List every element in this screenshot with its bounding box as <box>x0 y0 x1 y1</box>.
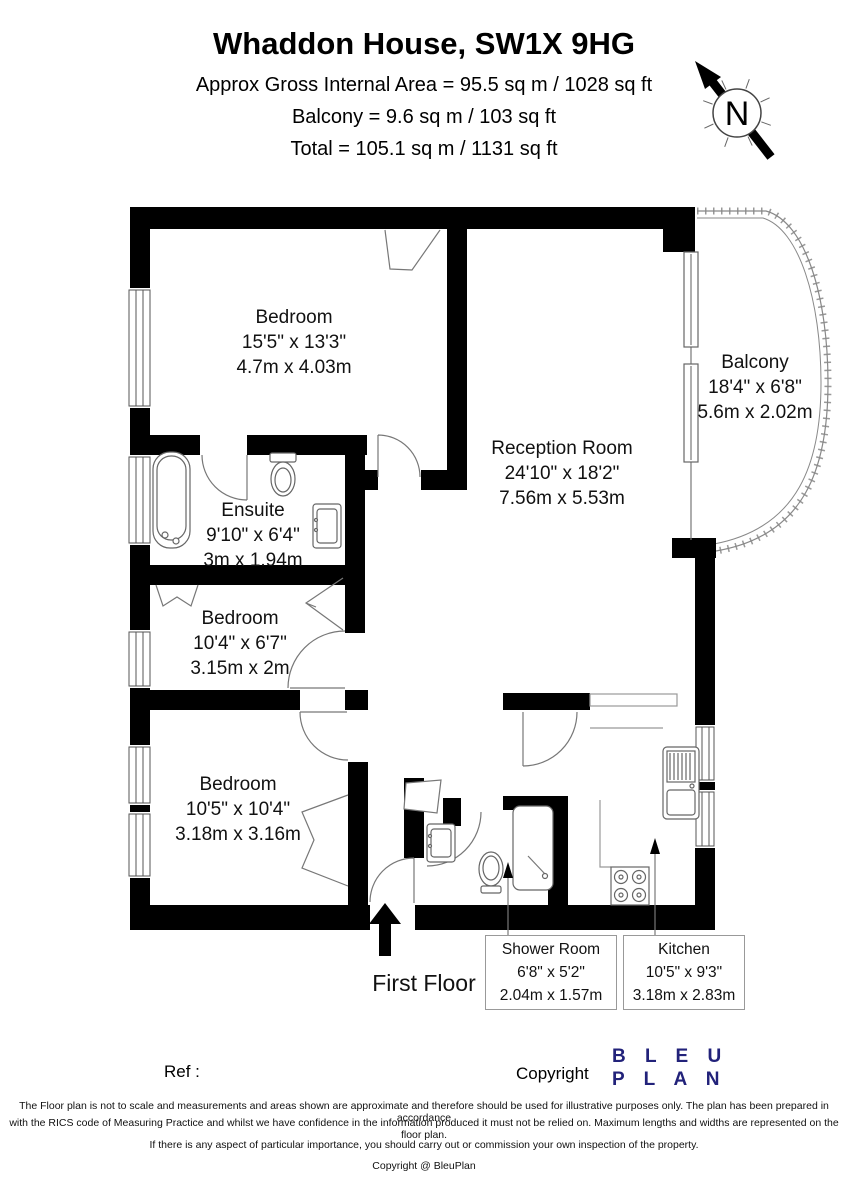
compass: N <box>695 61 771 157</box>
ensuite-basin-icon <box>313 504 341 548</box>
entrance-arrow-icon <box>369 903 401 956</box>
bleuplan-logo-line2: P L A N <box>612 1069 712 1091</box>
room-name: Bedroom <box>175 772 301 797</box>
room-label-bedroom-3: Bedroom 10'5" x 10'4" 3.18m x 3.16m <box>175 772 301 847</box>
ensuite-toilet-icon <box>270 453 296 496</box>
floor-label: First Floor <box>372 970 476 997</box>
disclaimer-line-4: Copyright @ BleuPlan <box>0 1160 848 1172</box>
shower-basin-icon <box>427 824 455 862</box>
disclaimer-line-2: with the RICS code of Measuring Practice… <box>0 1117 848 1141</box>
room-name: Bedroom <box>190 606 289 631</box>
room-label-ensuite: Ensuite 9'10" x 6'4" 3m x 1.94m <box>203 498 302 573</box>
bleuplan-logo-line1: B L E U <box>612 1046 712 1068</box>
room-name: Ensuite <box>203 498 302 523</box>
copyright-label: Copyright <box>516 1064 589 1084</box>
room-dims-metric: 3m x 1.94m <box>203 548 302 573</box>
room-label-bedroom-1: Bedroom 15'5" x 13'3" 4.7m x 4.03m <box>236 305 351 380</box>
room-name: Shower Room <box>486 938 616 961</box>
kitchen-sink-icon <box>663 747 699 819</box>
shower-tray-icon <box>513 806 553 890</box>
floorplan-page: Whaddon House, SW1X 9HG Approx Gross Int… <box>0 0 848 1200</box>
room-dims-imperial: 15'5" x 13'3" <box>236 330 351 355</box>
room-dims-imperial: 18'4" x 6'8" <box>697 375 812 400</box>
room-dims-metric: 5.6m x 2.02m <box>697 400 812 425</box>
room-name: Kitchen <box>624 938 744 961</box>
room-dims-metric: 3.18m x 3.16m <box>175 822 301 847</box>
room-dims-imperial: 10'5" x 10'4" <box>175 797 301 822</box>
room-name: Reception Room <box>491 436 633 461</box>
room-dims-imperial: 6'8" x 5'2" <box>486 961 616 984</box>
floor-plan-drawing: N <box>0 0 848 1200</box>
room-label-reception: Reception Room 24'10" x 18'2" 7.56m x 5.… <box>491 436 633 511</box>
room-dims-metric: 2.04m x 1.57m <box>486 984 616 1007</box>
balcony-glazing-icon <box>684 252 698 540</box>
ref-label: Ref : <box>164 1062 200 1082</box>
compass-n-label: N <box>725 95 750 133</box>
room-dims-metric: 7.56m x 5.53m <box>491 486 633 511</box>
room-dims-imperial: 10'4" x 6'7" <box>190 631 289 656</box>
shower-toilet-icon <box>479 852 503 893</box>
bathtub-icon <box>153 452 190 548</box>
room-name: Bedroom <box>236 305 351 330</box>
room-dims-metric: 4.7m x 4.03m <box>236 355 351 380</box>
room-label-balcony: Balcony 18'4" x 6'8" 5.6m x 2.02m <box>697 350 812 425</box>
room-dims-metric: 3.15m x 2m <box>190 656 289 681</box>
disclaimer-line-3: If there is any aspect of particular imp… <box>0 1139 848 1151</box>
room-dims-imperial: 24'10" x 18'2" <box>491 461 633 486</box>
room-dims-metric: 3.18m x 2.83m <box>624 984 744 1007</box>
room-name: Balcony <box>697 350 812 375</box>
room-dims-imperial: 9'10" x 6'4" <box>203 523 302 548</box>
dimbox-kitchen: Kitchen 10'5" x 9'3" 3.18m x 2.83m <box>623 935 745 1010</box>
room-label-bedroom-2: Bedroom 10'4" x 6'7" 3.15m x 2m <box>190 606 289 681</box>
dimbox-shower-room: Shower Room 6'8" x 5'2" 2.04m x 1.57m <box>485 935 617 1010</box>
hob-icon <box>611 867 649 905</box>
room-dims-imperial: 10'5" x 9'3" <box>624 961 744 984</box>
